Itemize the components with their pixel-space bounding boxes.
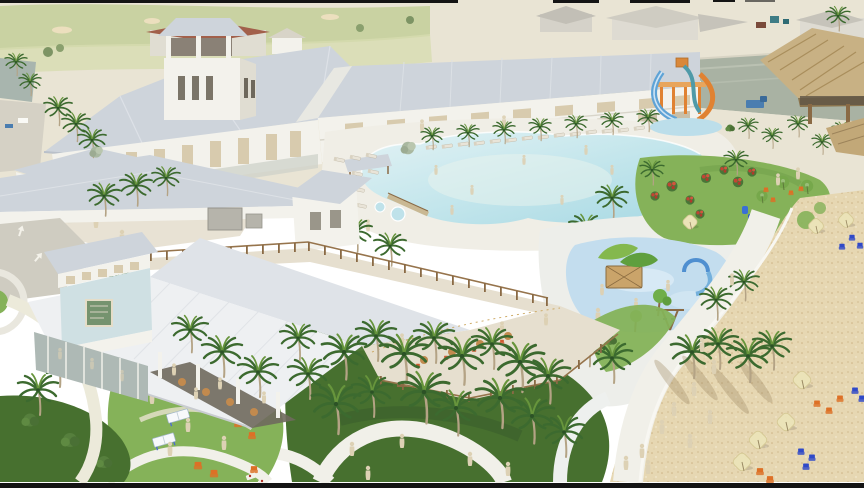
- spa-pool: [391, 207, 405, 221]
- resort-logo-sign: [86, 300, 112, 326]
- play-sculpture: [742, 206, 748, 214]
- cupola-tower: [158, 18, 256, 120]
- rooftop-unit: [208, 208, 242, 230]
- kids-pool: [650, 118, 722, 136]
- resort-aerial-rendering: [0, 0, 864, 488]
